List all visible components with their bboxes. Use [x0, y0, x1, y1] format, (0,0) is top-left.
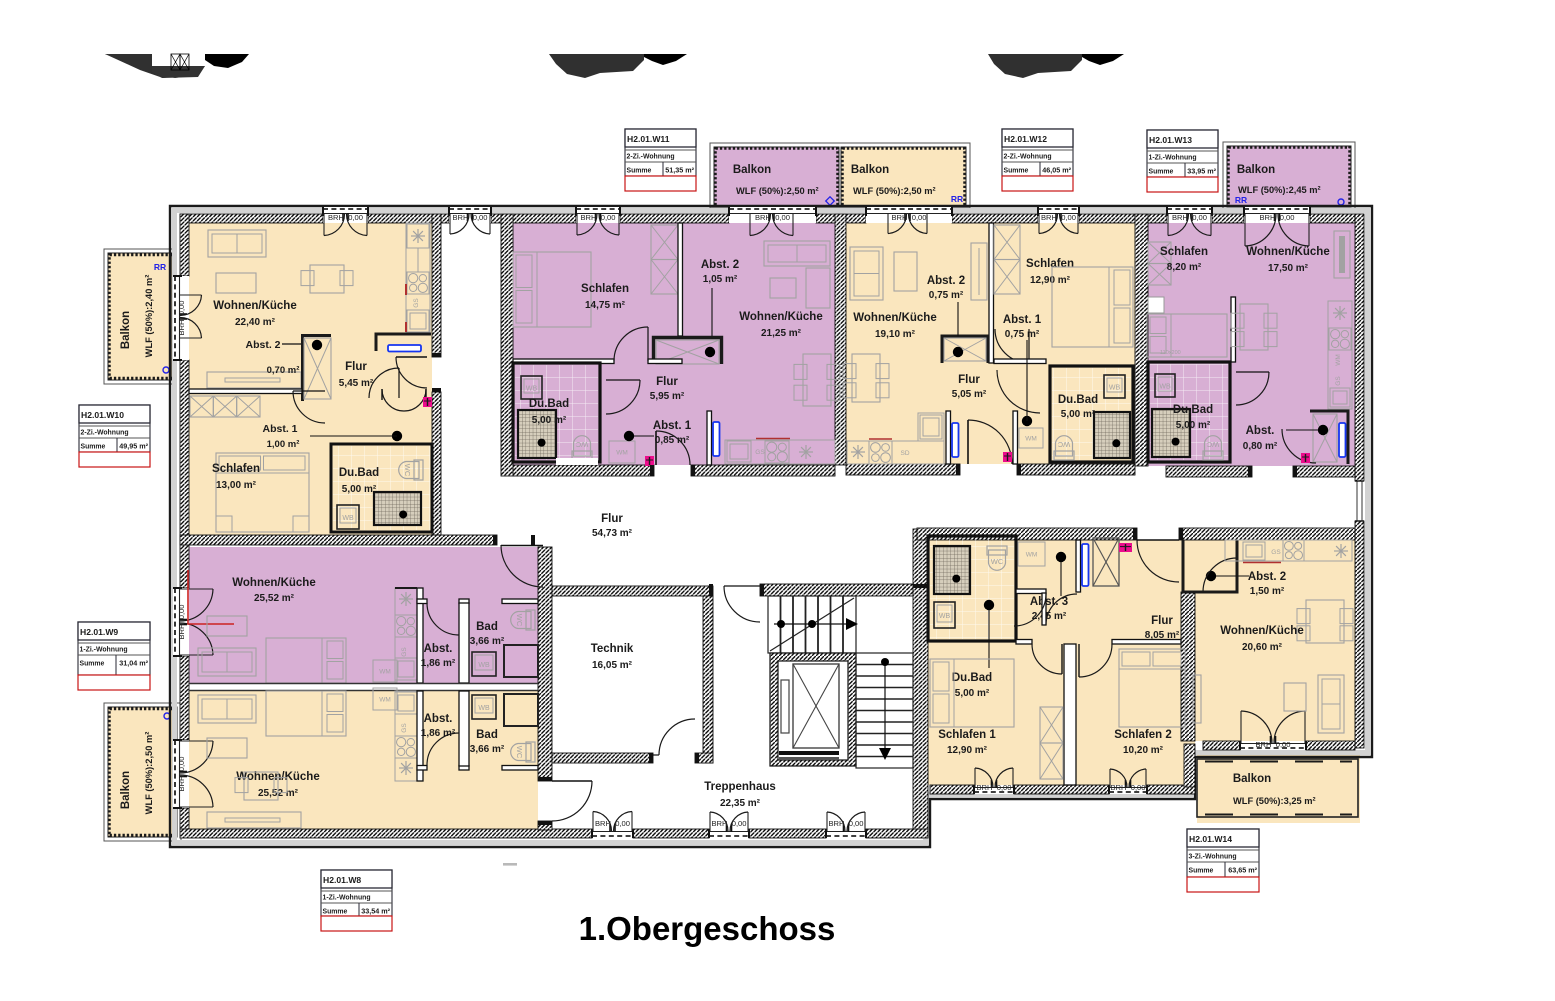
svg-text:0,80 m²: 0,80 m² — [1243, 441, 1278, 452]
svg-text:Bad: Bad — [476, 729, 498, 741]
svg-text:WB: WB — [478, 705, 490, 712]
svg-text:BRH 0,00: BRH 0,00 — [177, 756, 186, 791]
svg-text:0,70 m²: 0,70 m² — [267, 365, 300, 376]
svg-text:Flur: Flur — [345, 361, 367, 373]
svg-text:Summe: Summe — [1004, 168, 1029, 175]
svg-text:BRH 0,00: BRH 0,00 — [328, 213, 363, 222]
svg-text:16,05 m²: 16,05 m² — [592, 660, 633, 671]
svg-text:20,60 m²: 20,60 m² — [1242, 642, 1283, 653]
svg-text:5,45 m²: 5,45 m² — [339, 378, 374, 389]
svg-text:19,10 m²: 19,10 m² — [875, 329, 916, 340]
svg-text:14,75 m²: 14,75 m² — [585, 300, 626, 311]
svg-text:Flur: Flur — [958, 374, 980, 386]
svg-text:H2.01.W13: H2.01.W13 — [1149, 135, 1192, 145]
svg-text:BRH 0,00: BRH 0,00 — [1041, 213, 1076, 222]
svg-text:WB: WB — [526, 386, 538, 393]
svg-text:WLF (50%):2,50 m²: WLF (50%):2,50 m² — [853, 186, 936, 196]
svg-text:GS: GS — [1271, 549, 1281, 556]
svg-text:GS: GS — [755, 449, 765, 456]
svg-text:1,00 m²: 1,00 m² — [267, 439, 300, 450]
svg-text:63,65 m²: 63,65 m² — [1228, 866, 1257, 875]
svg-text:46,05 m²: 46,05 m² — [1042, 166, 1071, 175]
svg-text:H2.01.W10: H2.01.W10 — [81, 410, 124, 420]
svg-text:Treppenhaus: Treppenhaus — [704, 781, 776, 793]
svg-text:Summe: Summe — [81, 444, 106, 451]
svg-text:Schlafen: Schlafen — [1160, 246, 1208, 258]
svg-text:Wohnen/Küche: Wohnen/Küche — [739, 311, 822, 323]
svg-text:RR: RR — [951, 194, 963, 204]
svg-text:H2.01.W9: H2.01.W9 — [80, 627, 118, 637]
svg-text:Abst.: Abst. — [1246, 425, 1275, 437]
svg-text:WC: WC — [403, 464, 412, 477]
svg-text:WLF (50%):2,45 m²: WLF (50%):2,45 m² — [1238, 185, 1321, 195]
svg-text:1-Zi.-Wohnung: 1-Zi.-Wohnung — [323, 895, 371, 902]
svg-text:Balkon: Balkon — [120, 771, 132, 809]
svg-text:17,50 m²: 17,50 m² — [1268, 263, 1309, 274]
svg-text:BRH 0,00: BRH 0,00 — [976, 783, 1011, 792]
svg-text:WLF (50%):2,40 m²: WLF (50%):2,40 m² — [144, 275, 154, 358]
svg-text:H2.01.W14: H2.01.W14 — [1189, 834, 1232, 844]
svg-text:21,25 m²: 21,25 m² — [761, 328, 802, 339]
svg-text:Wohnen/Küche: Wohnen/Küche — [1220, 625, 1303, 637]
svg-text:WC: WC — [515, 614, 524, 627]
svg-text:WLF (50%):3,25 m²: WLF (50%):3,25 m² — [1233, 796, 1316, 806]
svg-text:3-Zi.-Wohnung: 3-Zi.-Wohnung — [1189, 854, 1237, 861]
svg-text:3,66 m²: 3,66 m² — [470, 744, 505, 755]
svg-text:WLF (50%):2,50 m²: WLF (50%):2,50 m² — [736, 186, 819, 196]
svg-text:5,00 m²: 5,00 m² — [1061, 409, 1096, 420]
svg-text:1,86 m²: 1,86 m² — [421, 728, 456, 739]
svg-text:WB: WB — [478, 662, 490, 669]
svg-text:54,73 m²: 54,73 m² — [592, 528, 633, 539]
svg-text:1-Zi.-Wohnung: 1-Zi.-Wohnung — [80, 647, 128, 654]
svg-text:BRH 0,00: BRH 0,00 — [1259, 213, 1294, 222]
svg-text:WC: WC — [1057, 440, 1070, 449]
svg-text:BRH 0,00: BRH 0,00 — [580, 213, 615, 222]
svg-text:1.Obergeschoss: 1.Obergeschoss — [579, 910, 836, 947]
svg-text:Abst. 1: Abst. 1 — [1003, 314, 1042, 326]
svg-text:H2.01.W12: H2.01.W12 — [1004, 134, 1047, 144]
svg-text:5,05 m²: 5,05 m² — [952, 389, 987, 400]
svg-text:2-Zi.-Wohnung: 2-Zi.-Wohnung — [627, 154, 675, 161]
svg-text:Abst. 2: Abst. 2 — [927, 275, 965, 287]
svg-text:WM: WM — [1335, 354, 1342, 366]
svg-text:WM: WM — [1026, 552, 1038, 559]
svg-text:BRH 0,00: BRH 0,00 — [828, 819, 863, 828]
svg-text:Abst.: Abst. — [424, 713, 453, 725]
svg-text:GS: GS — [401, 647, 408, 657]
svg-text:Balkon: Balkon — [1233, 773, 1271, 785]
svg-text:Summe: Summe — [80, 661, 105, 668]
svg-text:GS: GS — [413, 298, 420, 308]
svg-text:WM: WM — [379, 669, 391, 676]
svg-text:Abst. 2: Abst. 2 — [245, 339, 280, 351]
svg-text:Summe: Summe — [1189, 868, 1214, 875]
svg-text:25,52 m²: 25,52 m² — [254, 593, 295, 604]
svg-text:31,04 m²: 31,04 m² — [119, 659, 148, 668]
svg-text:WM: WM — [1025, 436, 1037, 443]
svg-text:5,00 m²: 5,00 m² — [1176, 420, 1211, 431]
svg-text:Summe: Summe — [323, 909, 348, 916]
svg-text:BRH 0,00: BRH 0,00 — [1255, 740, 1290, 749]
svg-text:Abst. 1: Abst. 1 — [262, 423, 297, 435]
svg-text:Summe: Summe — [627, 168, 652, 175]
svg-text:BRH 0,00: BRH 0,00 — [711, 819, 746, 828]
svg-text:Balkon: Balkon — [733, 164, 771, 176]
svg-text:Wohnen/Küche: Wohnen/Küche — [853, 312, 936, 324]
svg-text:49,95 m²: 49,95 m² — [119, 442, 148, 451]
svg-text:10,20 m²: 10,20 m² — [1123, 745, 1164, 756]
svg-text:Du.Bad: Du.Bad — [1058, 394, 1098, 406]
svg-text:1,05 m²: 1,05 m² — [703, 274, 738, 285]
svg-text:BRH 0,00: BRH 0,00 — [177, 604, 186, 639]
svg-text:5,00 m²: 5,00 m² — [955, 688, 990, 699]
svg-text:Balkon: Balkon — [1237, 164, 1275, 176]
svg-text:Schlafen: Schlafen — [1026, 258, 1074, 270]
svg-text:51,35 m²: 51,35 m² — [665, 166, 694, 175]
svg-text:5,00 m²: 5,00 m² — [342, 484, 377, 495]
svg-text:12,90 m²: 12,90 m² — [1030, 275, 1071, 286]
svg-text:Du.Bad: Du.Bad — [1173, 404, 1213, 416]
svg-text:WB: WB — [1159, 384, 1171, 391]
svg-text:Abst. 2: Abst. 2 — [701, 259, 739, 271]
svg-text:33,95 m²: 33,95 m² — [1187, 167, 1216, 176]
svg-text:Schlafen 2: Schlafen 2 — [1114, 729, 1172, 741]
svg-text:Schlafen 1: Schlafen 1 — [938, 729, 996, 741]
svg-text:WB: WB — [342, 515, 354, 522]
svg-text:BRH 0,00: BRH 0,00 — [1110, 783, 1145, 792]
svg-text:2-Zi.-Wohnung: 2-Zi.-Wohnung — [81, 430, 129, 437]
svg-text:GS: GS — [1335, 376, 1342, 386]
svg-text:Bad: Bad — [476, 621, 498, 633]
svg-text:BRH 0,00: BRH 0,00 — [452, 213, 487, 222]
svg-text:WC: WC — [1206, 440, 1219, 449]
svg-text:1-Zi.-Wohnung: 1-Zi.-Wohnung — [1149, 155, 1197, 162]
svg-text:2-Zi.-Wohnung: 2-Zi.-Wohnung — [1004, 154, 1052, 161]
svg-text:Wohnen/Küche: Wohnen/Küche — [1246, 246, 1329, 258]
svg-text:0,75 m²: 0,75 m² — [1005, 329, 1040, 340]
svg-text:H2.01.W11: H2.01.W11 — [627, 134, 670, 144]
svg-text:Abst. 1: Abst. 1 — [653, 420, 692, 432]
svg-text:Schlafen: Schlafen — [212, 463, 260, 475]
svg-text:8,20 m²: 8,20 m² — [1167, 262, 1202, 273]
svg-text:BRH 0,00: BRH 0,00 — [891, 213, 926, 222]
svg-text:33,54 m²: 33,54 m² — [361, 907, 390, 916]
svg-text:22,35 m²: 22,35 m² — [720, 798, 761, 809]
svg-text:5,95 m²: 5,95 m² — [650, 391, 685, 402]
svg-text:RR: RR — [1235, 195, 1247, 205]
svg-text:BRH 0,00: BRH 0,00 — [595, 819, 630, 828]
svg-text:Wohnen/Küche: Wohnen/Küche — [213, 300, 296, 312]
svg-text:Du.Bad: Du.Bad — [952, 672, 992, 684]
svg-text:1,50 m²: 1,50 m² — [1250, 586, 1285, 597]
svg-text:110x200: 110x200 — [1160, 350, 1181, 356]
svg-text:RR: RR — [154, 262, 166, 272]
svg-text:WC: WC — [991, 557, 1004, 566]
svg-text:13,00 m²: 13,00 m² — [216, 480, 257, 491]
svg-text:Balkon: Balkon — [120, 311, 132, 349]
svg-text:WC: WC — [575, 440, 588, 449]
svg-text:WB: WB — [939, 613, 951, 620]
svg-text:12,90 m²: 12,90 m² — [947, 745, 988, 756]
svg-text:5,00 m²: 5,00 m² — [532, 415, 567, 426]
svg-text:Du.Bad: Du.Bad — [339, 467, 379, 479]
svg-text:WLF (50%):2,50 m²: WLF (50%):2,50 m² — [144, 732, 154, 815]
svg-text:Abst.: Abst. — [424, 643, 453, 655]
svg-text:SD: SD — [900, 450, 909, 457]
svg-text:GS: GS — [401, 723, 408, 733]
svg-text:WC: WC — [515, 746, 524, 759]
svg-text:Schlafen: Schlafen — [581, 283, 629, 295]
svg-text:0,85 m²: 0,85 m² — [655, 435, 690, 446]
svg-text:Abst. 2: Abst. 2 — [1248, 571, 1286, 583]
svg-text:0,75 m²: 0,75 m² — [929, 290, 964, 301]
svg-text:Du.Bad: Du.Bad — [529, 398, 569, 410]
svg-text:WM: WM — [616, 450, 628, 457]
svg-text:BRH 0,00: BRH 0,00 — [1172, 213, 1207, 222]
svg-text:WM: WM — [379, 697, 391, 704]
svg-text:Flur: Flur — [656, 376, 678, 388]
svg-text:Flur: Flur — [1151, 615, 1173, 627]
svg-text:22,40 m²: 22,40 m² — [235, 317, 276, 328]
svg-text:Technik: Technik — [591, 643, 634, 655]
svg-text:Balkon: Balkon — [851, 164, 889, 176]
svg-text:Wohnen/Küche: Wohnen/Küche — [232, 577, 315, 589]
svg-text:WB: WB — [1109, 385, 1121, 392]
svg-text:Summe: Summe — [1149, 169, 1174, 176]
svg-text:1,86 m²: 1,86 m² — [421, 658, 456, 669]
svg-text:3,66 m²: 3,66 m² — [470, 636, 505, 647]
svg-text:BRH 0,00: BRH 0,00 — [177, 300, 186, 335]
svg-text:BRH 0,00: BRH 0,00 — [755, 213, 790, 222]
svg-text:Flur: Flur — [601, 513, 623, 525]
svg-text:H2.01.W8: H2.01.W8 — [323, 875, 361, 885]
